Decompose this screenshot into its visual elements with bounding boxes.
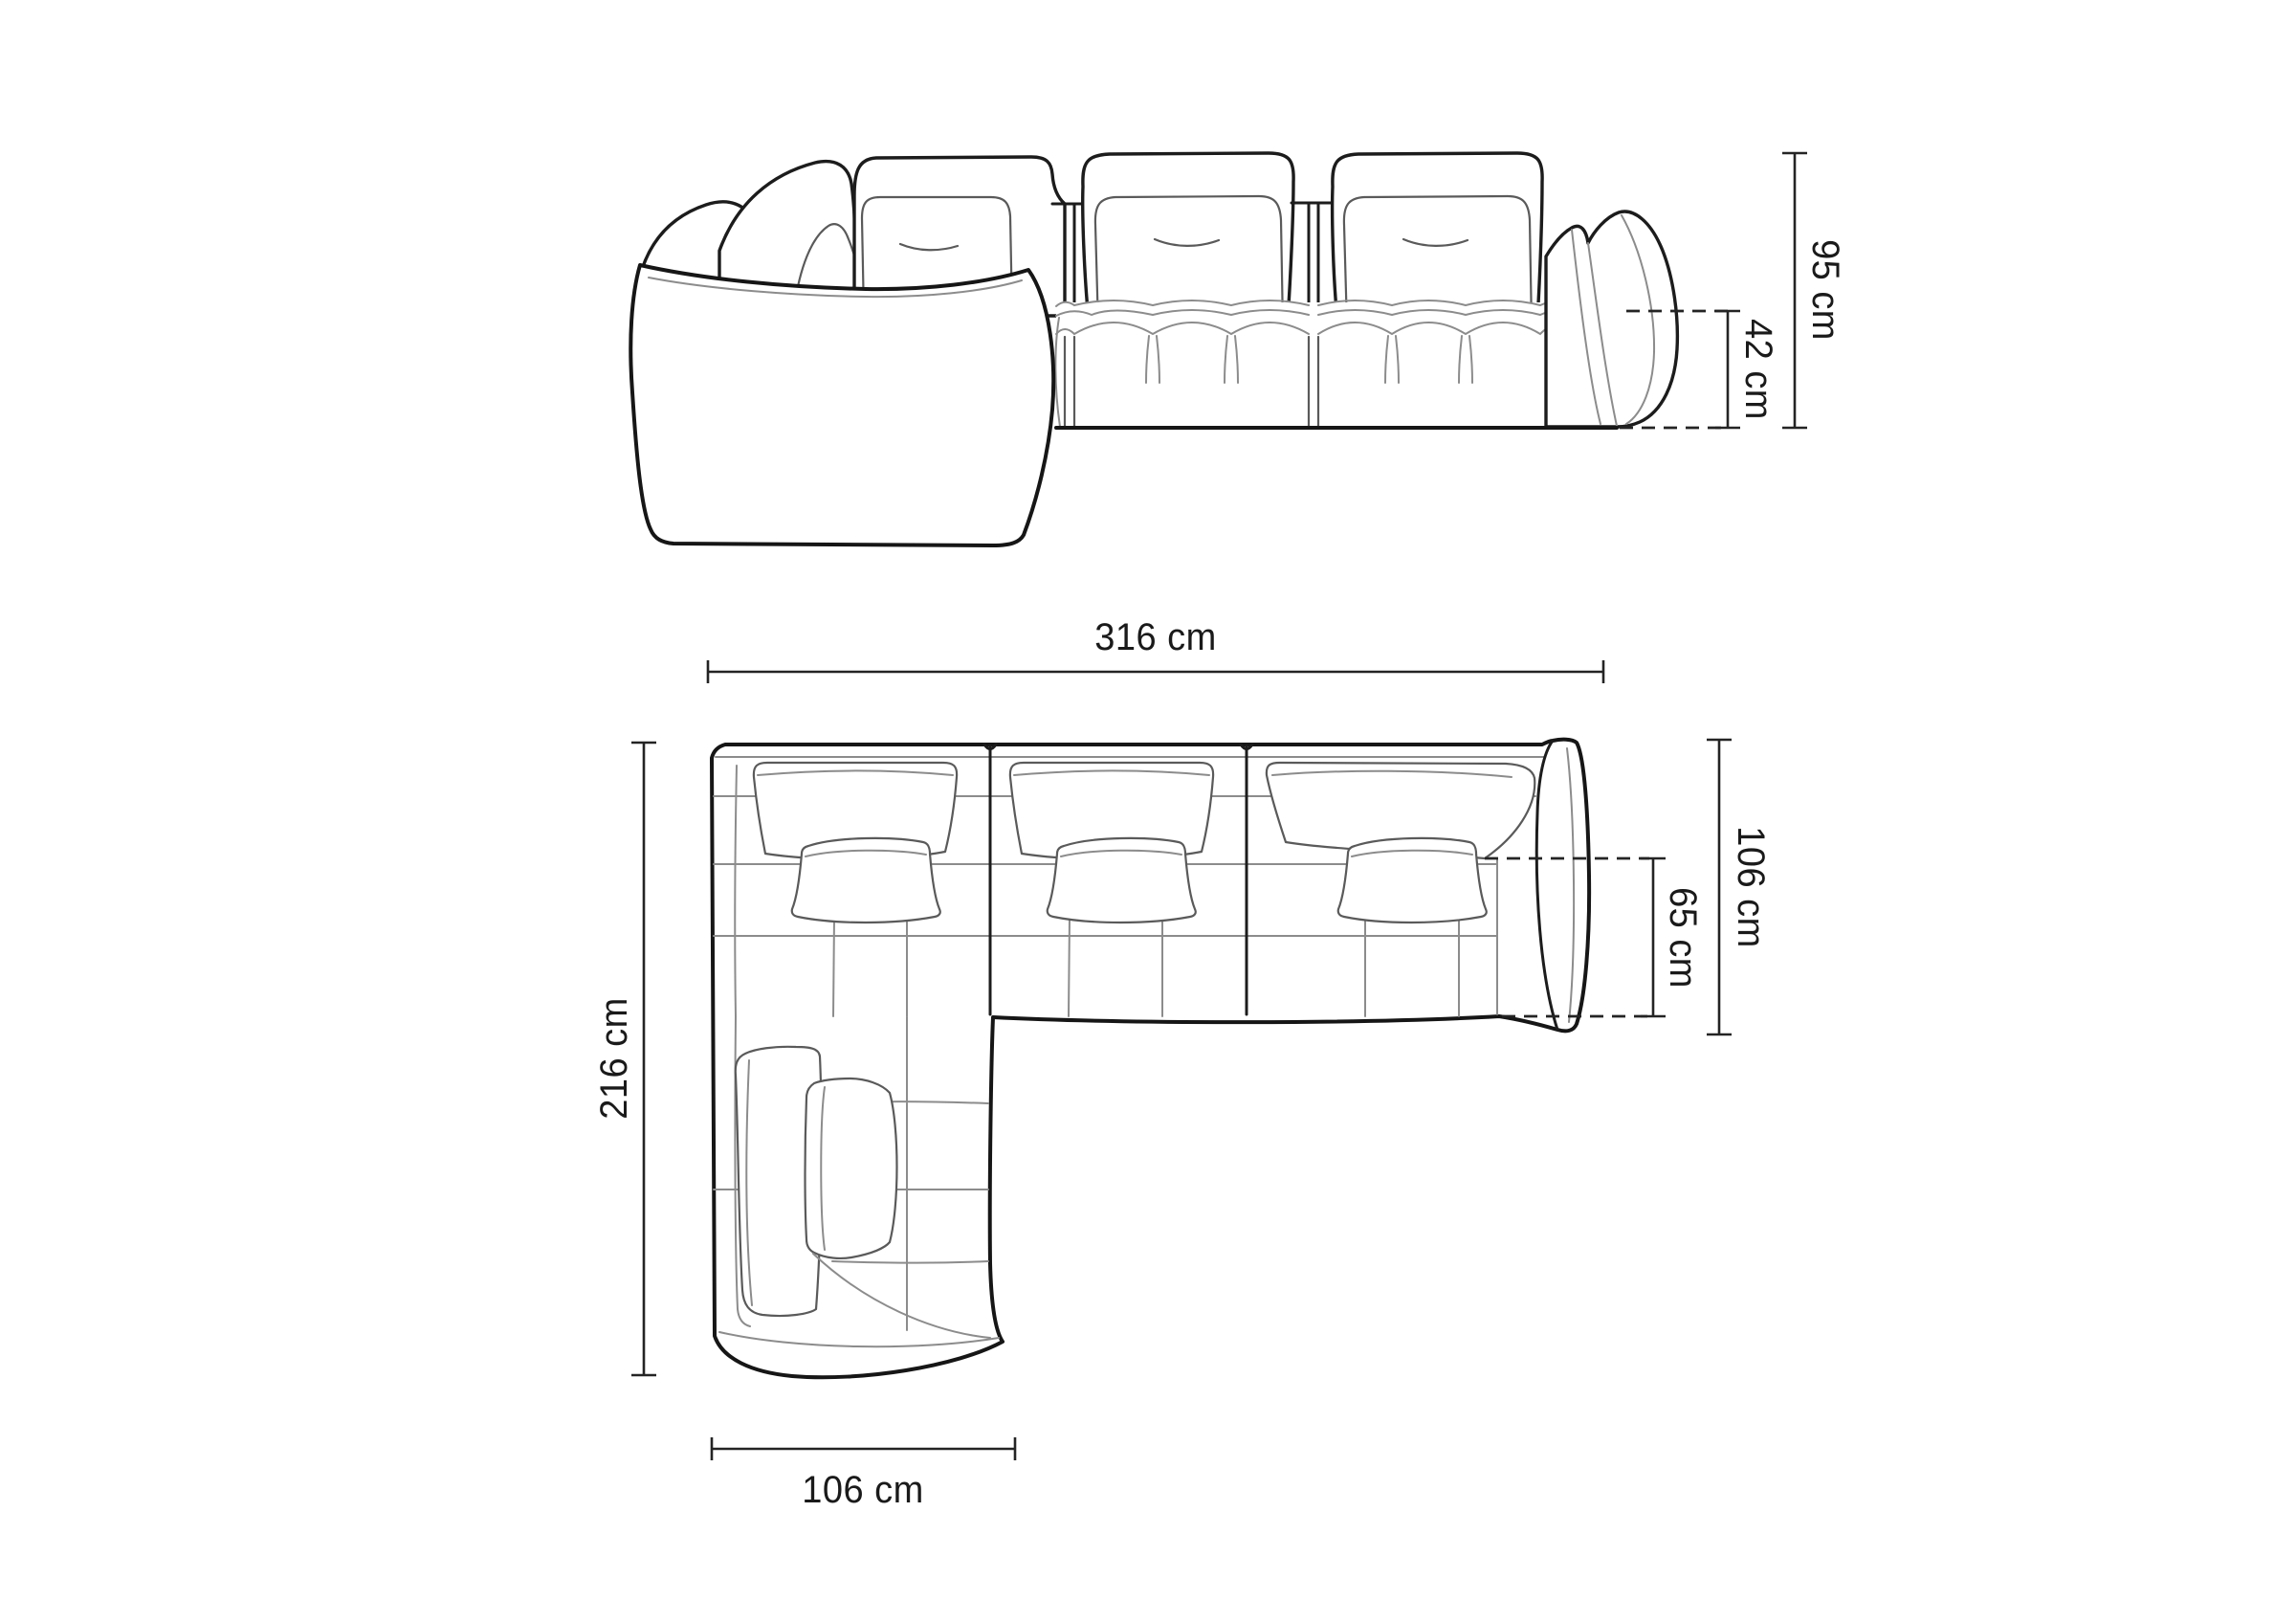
diagram-canvas xyxy=(0,0,2296,1623)
front-view-drawing xyxy=(630,153,1677,545)
dim-label-side-depth: 106 cm xyxy=(1732,826,1770,947)
dim-label-total-width: 316 cm xyxy=(1094,618,1216,656)
dim-label-seat-depth: 65 cm xyxy=(1664,887,1702,989)
right-armrest xyxy=(1546,211,1677,427)
sofa-dimension-diagram: 95 cm 42 cm 316 cm 216 cm 106 cm 65 cm 1… xyxy=(0,0,2296,1623)
dim-line-chaise-width xyxy=(712,1437,1015,1460)
dim-line-side-depth xyxy=(1707,740,1732,1034)
dim-line-total-width xyxy=(708,660,1603,683)
dim-label-chaise-width: 106 cm xyxy=(802,1471,923,1509)
chaise-seat-cushion xyxy=(806,1078,897,1258)
dim-label-seat-height: 42 cm xyxy=(1739,319,1777,420)
seat-band xyxy=(1056,302,1615,428)
dim-label-total-height: 95 cm xyxy=(1806,239,1844,341)
dim-label-total-depth: 216 cm xyxy=(595,997,633,1119)
corner-module-face xyxy=(630,265,1053,545)
top-view-drawing xyxy=(712,740,1589,1378)
